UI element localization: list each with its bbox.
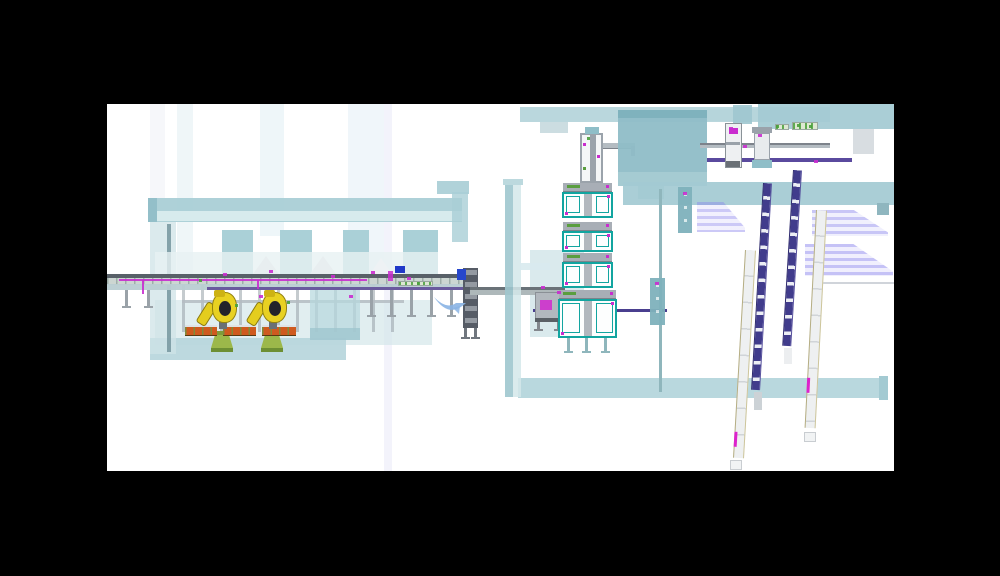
station-column xyxy=(584,194,592,216)
tower-leg-foot xyxy=(461,337,470,339)
magenta-dot xyxy=(259,295,263,298)
machine-bar xyxy=(726,142,740,145)
tower-column xyxy=(590,135,596,181)
machine-body xyxy=(754,133,770,160)
magenta-dot xyxy=(758,134,762,137)
magenta-dot xyxy=(683,192,687,195)
stack-leg-foot xyxy=(601,351,610,353)
roof-teal-block xyxy=(733,105,752,124)
station-dot xyxy=(561,332,564,335)
station-column xyxy=(584,264,592,286)
conveyor-leg xyxy=(370,290,373,315)
shadow-stripe-1 xyxy=(697,202,745,232)
gantry-step-column xyxy=(452,192,468,242)
glass-wall-inner xyxy=(513,179,521,397)
magenta-dot xyxy=(729,127,733,130)
tr-machine-1 xyxy=(725,123,742,168)
station-window xyxy=(596,196,610,213)
cad-viewport[interactable] xyxy=(107,104,894,471)
swoosh-mark xyxy=(433,294,467,316)
stack-leg-foot xyxy=(564,351,573,353)
station-column xyxy=(584,301,592,336)
bottom-enclosure-band xyxy=(518,378,888,398)
station-cap-dot xyxy=(606,255,609,258)
station-dot xyxy=(565,246,568,249)
station-window xyxy=(596,303,614,333)
station-window xyxy=(566,235,580,247)
tr-greenbar-2 xyxy=(792,122,818,130)
floor-slab-left-front xyxy=(150,338,346,360)
bottom-band-cap xyxy=(879,376,888,400)
station-cap-chip xyxy=(567,255,580,258)
station-cap-chip xyxy=(567,224,580,227)
station-cap-dot xyxy=(610,292,613,295)
magenta-dot xyxy=(541,286,545,289)
station-body xyxy=(562,231,613,252)
transfer-greenbar xyxy=(398,281,433,286)
green-dot xyxy=(199,279,202,282)
tower-leg xyxy=(474,328,477,337)
station-window xyxy=(566,266,580,283)
machine-teal-base xyxy=(752,160,772,168)
robot-wrist xyxy=(264,290,275,297)
cell-enclosure-edge xyxy=(310,328,360,340)
magenta-dot xyxy=(407,277,411,280)
tr-machine-2 xyxy=(752,127,772,168)
station-column xyxy=(584,233,592,250)
machine-leg xyxy=(537,322,540,329)
robot-under xyxy=(269,322,277,329)
magenta-dot xyxy=(655,282,659,285)
wall-box-lower xyxy=(650,278,665,325)
glass-wall-outer xyxy=(505,179,513,397)
station-dot xyxy=(607,195,610,198)
conveyor-leg-foot xyxy=(367,315,376,317)
stack-leg xyxy=(585,338,588,351)
conveyor-leg-foot xyxy=(387,315,396,317)
station-cap-chip xyxy=(563,292,576,295)
green-dot xyxy=(776,125,779,128)
green-dot xyxy=(809,125,812,128)
big-enclosure-top xyxy=(618,110,707,118)
gantry-beam-inner xyxy=(156,211,462,221)
robot-2 xyxy=(255,292,291,332)
green-dot xyxy=(235,304,238,307)
robot-wrist xyxy=(214,290,225,297)
conveyor-leg xyxy=(125,290,128,306)
station-body xyxy=(558,299,617,338)
machine-leg-foot xyxy=(534,329,543,331)
upper-band-3-tab xyxy=(877,203,889,215)
pedestal-base xyxy=(211,348,233,352)
conveyor-leg xyxy=(147,290,150,306)
magenta-dot xyxy=(557,291,561,294)
magenta-dot xyxy=(269,270,273,273)
magenta-dot xyxy=(814,160,818,163)
bg-stripe-2 xyxy=(177,104,193,274)
conveyor-leg xyxy=(390,290,393,315)
bg-stripe-1 xyxy=(150,104,165,204)
robot-joint xyxy=(219,301,231,316)
cable-tray-purple xyxy=(207,287,470,290)
robot-joint xyxy=(269,301,281,316)
tealbox-dot xyxy=(684,219,687,222)
machine-base xyxy=(726,161,740,167)
station-window xyxy=(562,303,580,333)
cable-magenta-drop xyxy=(142,280,144,294)
letterbox-background xyxy=(0,0,1000,576)
station-2 xyxy=(562,222,613,252)
lift-tower-cap xyxy=(585,127,599,134)
pedestal-base xyxy=(261,348,283,352)
blue-unit xyxy=(395,266,405,273)
station-1 xyxy=(562,183,613,218)
magenta-unit xyxy=(388,271,393,281)
cable-magenta-drop xyxy=(257,280,259,289)
cable-magenta xyxy=(119,279,367,281)
pedestal-body xyxy=(211,335,233,348)
conveyor-leg-foot xyxy=(407,315,416,317)
station-dot xyxy=(611,302,614,305)
station-cap-chip xyxy=(567,185,580,188)
roof-gray-stub xyxy=(853,129,874,154)
station-dot xyxy=(607,234,610,237)
green-dot xyxy=(587,137,590,140)
station-dot xyxy=(607,265,610,268)
tower-leg-foot xyxy=(471,337,480,339)
station-dot xyxy=(565,282,568,285)
magenta-dot xyxy=(331,275,335,278)
stack-leg-foot xyxy=(582,351,591,353)
station-window xyxy=(566,196,580,213)
tower-dot-magenta xyxy=(597,155,600,158)
pedestal-body xyxy=(261,335,283,348)
magenta-dot xyxy=(349,295,353,298)
buffer-lane-1-end xyxy=(730,460,742,470)
magenta-dot xyxy=(743,145,747,148)
chain-conveyor-1 xyxy=(751,183,772,390)
faint-rail-line xyxy=(820,282,894,284)
lift-tower xyxy=(580,133,603,183)
buffer-lane-2-end xyxy=(804,432,816,442)
tealbox-dot xyxy=(684,206,687,209)
stack-leg xyxy=(567,338,570,351)
robot-1 xyxy=(205,292,241,332)
station-body xyxy=(562,192,613,218)
tower-dot-green xyxy=(583,167,586,170)
buffer-lane-2-magenta-mark xyxy=(806,378,810,393)
wall-connector xyxy=(520,263,550,270)
magenta-dot xyxy=(371,271,375,274)
station-window xyxy=(596,266,610,283)
station-4 xyxy=(558,290,617,338)
conveyor-leg-foot xyxy=(144,306,153,308)
tower-leg xyxy=(464,328,467,337)
green-dot xyxy=(797,124,800,127)
roof-gray-box xyxy=(540,122,568,133)
chain-conveyor-2-tail xyxy=(784,348,792,364)
glass-wall-cap xyxy=(503,179,523,185)
station-dot xyxy=(565,212,568,215)
conveyor-leg-foot xyxy=(122,306,131,308)
station-cap-dot xyxy=(606,224,609,227)
tealbox-dot xyxy=(656,297,659,300)
green-dot xyxy=(287,301,290,304)
station-body xyxy=(562,262,613,288)
buffer-lane-1-magenta-mark xyxy=(734,432,738,447)
tower-dot-magenta xyxy=(583,143,586,146)
control-tower-blue-box xyxy=(457,269,466,280)
upper-band-3 xyxy=(623,182,894,205)
gantry-beam-cap xyxy=(148,198,157,222)
station-3 xyxy=(562,253,613,288)
magenta-dot xyxy=(223,273,227,276)
station-cap-dot xyxy=(606,185,609,188)
chain-conveyor-1-tail xyxy=(754,392,762,410)
stack-leg xyxy=(604,338,607,351)
tealbox-dot xyxy=(656,310,659,313)
robot-under xyxy=(219,322,227,329)
conveyor-leg xyxy=(410,290,413,315)
green-dot xyxy=(417,282,420,285)
mid-machine-panel xyxy=(540,300,552,310)
